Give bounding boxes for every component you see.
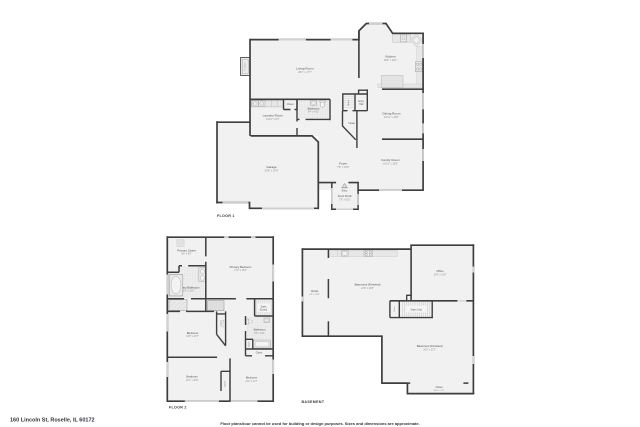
- svg-text:16'8" x 16'1": 16'8" x 16'1": [384, 59, 398, 62]
- svg-text:Foyer: Foyer: [339, 161, 347, 165]
- svg-text:20'8" x 23'9": 20'8" x 23'9": [265, 170, 279, 173]
- svg-text:Closet: Closet: [256, 352, 263, 355]
- svg-text:11'2" x 11'7": 11'2" x 11'7": [245, 381, 257, 383]
- svg-text:Closet: Closet: [348, 122, 355, 125]
- svg-text:9'4" x 4'11": 9'4" x 4'11": [308, 112, 319, 114]
- svg-text:Bathroom: Bathroom: [308, 106, 320, 110]
- svg-text:Stairs: Stairs: [347, 99, 350, 105]
- svg-text:Stairs (Up): Stairs (Up): [410, 308, 422, 311]
- svg-text:Closet: Closet: [393, 306, 396, 312]
- svg-text:7'8" x 4'11": 7'8" x 4'11": [254, 333, 265, 335]
- svg-text:BASEMENT: BASEMENT: [302, 400, 325, 404]
- svg-text:12'1" x 10'9": 12'1" x 10'9": [186, 380, 199, 382]
- svg-text:Bedroom: Bedroom: [187, 374, 199, 378]
- svg-text:Closet: Closet: [436, 386, 443, 389]
- svg-text:Closet: Closet: [287, 103, 294, 106]
- svg-text:Bedroom: Bedroom: [246, 376, 258, 380]
- svg-text:9'8" x 5'6": 9'8" x 5'6": [181, 254, 191, 256]
- svg-text:26'1" x 17'7": 26'1" x 17'7": [298, 71, 312, 74]
- svg-text:Office: Office: [436, 269, 444, 273]
- svg-text:Laundry Room: Laundry Room: [263, 114, 284, 118]
- svg-text:Closet: Closet: [219, 320, 222, 326]
- svg-text:Primary Closet: Primary Closet: [177, 248, 196, 252]
- svg-text:Family Room: Family Room: [381, 158, 400, 162]
- svg-text:FLOOR 1: FLOOR 1: [217, 214, 235, 218]
- svg-text:4'9" x 19'9": 4'9" x 19'9": [309, 294, 320, 296]
- svg-text:Hall: Hall: [359, 103, 364, 106]
- svg-text:Entry: Entry: [342, 189, 348, 192]
- svg-text:Floor plans/tour cannot be use: Floor plans/tour cannot be used for buil…: [220, 421, 419, 426]
- svg-text:Bedroom: Bedroom: [187, 331, 199, 335]
- svg-text:21'8" x 20'8": 21'8" x 20'8": [361, 288, 374, 290]
- svg-text:Closet: Closet: [224, 381, 227, 387]
- svg-text:160 Lincoln St, Roselle, IL 60: 160 Lincoln St, Roselle, IL 60172: [10, 417, 95, 423]
- svg-text:Front Porch: Front Porch: [338, 194, 353, 198]
- svg-text:16'11" x 13'8": 16'11" x 13'8": [383, 163, 398, 166]
- svg-text:Basement (Finished): Basement (Finished): [355, 282, 381, 286]
- svg-text:26'3" x 23'7": 26'3" x 23'7": [423, 350, 436, 352]
- svg-text:16'10" x 2'6": 16'10" x 2'6": [434, 390, 445, 392]
- svg-text:FLOOR 2: FLOOR 2: [169, 405, 187, 409]
- svg-text:7'5" x 14'6": 7'5" x 14'6": [337, 166, 349, 169]
- svg-text:10'8" x 10'7": 10'8" x 10'7": [186, 336, 199, 338]
- svg-text:Primary Bedroom: Primary Bedroom: [230, 265, 252, 269]
- svg-text:17'4" x 16'2": 17'4" x 16'2": [234, 270, 247, 272]
- svg-text:(Down): (Down): [260, 309, 268, 311]
- svg-text:11'10" x 8'3": 11'10" x 8'3": [266, 118, 280, 121]
- svg-text:7'8" x 6'10": 7'8" x 6'10": [339, 199, 351, 201]
- svg-text:10'5" x 11'8": 10'5" x 11'8": [434, 275, 447, 277]
- svg-text:Stairs: Stairs: [261, 305, 268, 308]
- svg-text:Living Room: Living Room: [296, 67, 314, 71]
- svg-text:11'4" x 10'2": 11'4" x 10'2": [182, 291, 195, 293]
- svg-text:Garage: Garage: [266, 165, 277, 169]
- svg-text:Closet: Closet: [311, 289, 319, 293]
- svg-text:16'11" x 10'8": 16'11" x 10'8": [384, 116, 399, 119]
- svg-text:Fireplace: Fireplace: [245, 62, 247, 71]
- svg-text:Dining Room: Dining Room: [383, 111, 401, 115]
- svg-text:2'1" x 6'4": 2'1" x 6'4": [223, 319, 225, 328]
- svg-text:Bathroom: Bathroom: [254, 328, 266, 332]
- svg-text:Basement (Finished): Basement (Finished): [417, 344, 443, 348]
- svg-text:Closet: Closet: [247, 341, 250, 347]
- svg-text:Kitchen: Kitchen: [385, 55, 396, 59]
